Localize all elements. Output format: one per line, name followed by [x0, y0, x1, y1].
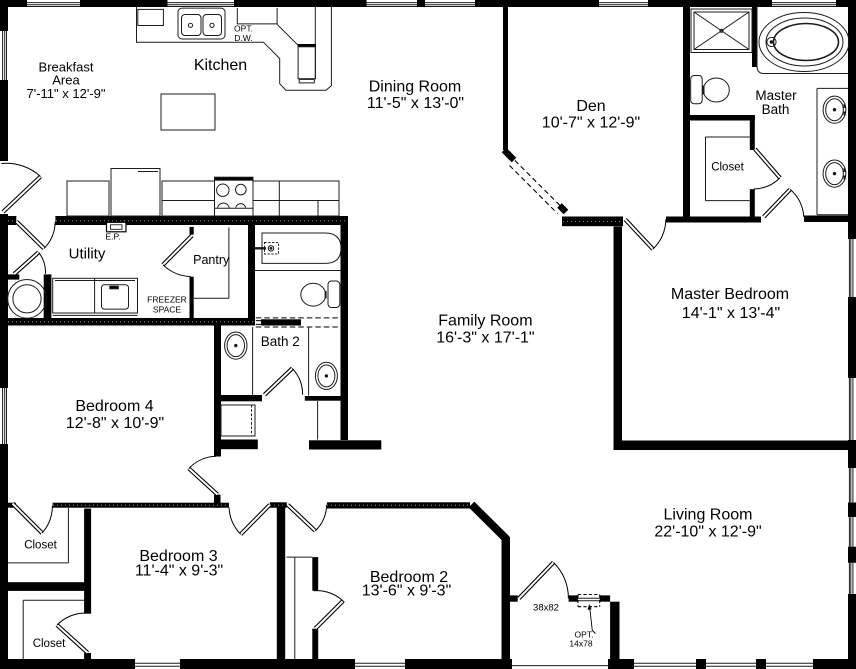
- svg-text:13'-6" x 9'-3": 13'-6" x 9'-3": [362, 583, 452, 600]
- svg-text:Closet: Closet: [24, 540, 57, 552]
- svg-text:11'-5" x 13'-0": 11'-5" x 13'-0": [367, 95, 464, 112]
- svg-text:38x82: 38x82: [533, 603, 559, 614]
- svg-text:Living Room: Living Room: [664, 507, 753, 524]
- svg-text:Bedroom 4: Bedroom 4: [75, 398, 153, 415]
- svg-text:Closet: Closet: [33, 638, 66, 650]
- svg-text:Kitchen: Kitchen: [194, 57, 247, 74]
- svg-text:SPACE: SPACE: [153, 305, 182, 315]
- svg-text:14'-1" x 13'-4": 14'-1" x 13'-4": [682, 305, 780, 322]
- svg-text:Master: Master: [755, 88, 797, 103]
- svg-text:14x78: 14x78: [569, 639, 592, 649]
- svg-text:22'-10" x 12'-9": 22'-10" x 12'-9": [654, 524, 761, 541]
- svg-text:E.P.: E.P.: [106, 232, 121, 242]
- svg-text:10'-7" x 12'-9": 10'-7" x 12'-9": [542, 115, 640, 132]
- svg-text:Bath 2: Bath 2: [261, 334, 300, 349]
- svg-text:7'-11" x 12'-9": 7'-11" x 12'-9": [27, 86, 106, 101]
- svg-text:Closet: Closet: [711, 162, 744, 174]
- svg-text:Den: Den: [576, 98, 605, 115]
- svg-text:Pantry: Pantry: [193, 253, 230, 267]
- svg-text:11'-4" x 9'-3": 11'-4" x 9'-3": [135, 563, 223, 580]
- svg-text:Master Bedroom: Master Bedroom: [671, 286, 789, 303]
- svg-text:12'-8" x 10'-9": 12'-8" x 10'-9": [66, 415, 164, 432]
- svg-text:16'-3" x 17'-1": 16'-3" x 17'-1": [436, 329, 534, 346]
- svg-text:FREEZER: FREEZER: [147, 295, 187, 305]
- svg-text:Dining Room: Dining Room: [369, 79, 461, 96]
- svg-text:Utility: Utility: [69, 245, 106, 262]
- svg-text:Bath: Bath: [762, 102, 790, 117]
- svg-text:Family Room: Family Room: [438, 313, 532, 330]
- svg-text:OPT.: OPT.: [234, 24, 253, 34]
- svg-text:D.W.: D.W.: [234, 33, 252, 43]
